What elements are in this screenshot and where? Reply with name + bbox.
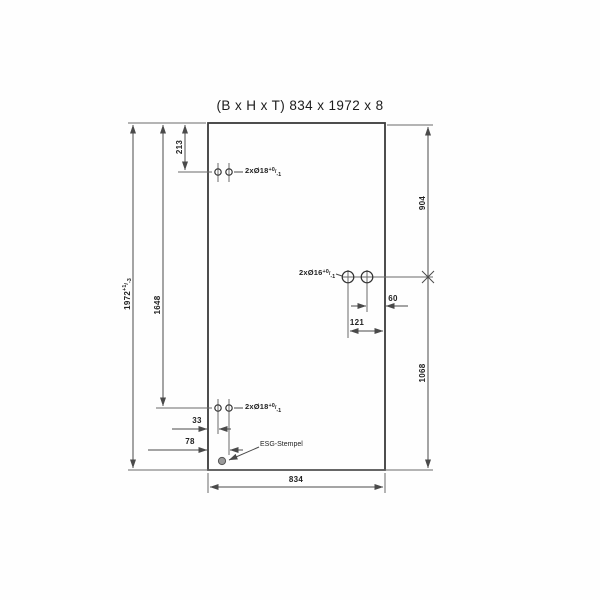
callout-bottom-hinge-holes: 2xØ18+0/-1 bbox=[245, 402, 281, 411]
dim-hinge-hole1-from-edge: 33 bbox=[186, 415, 208, 425]
callout-lock-holes: 2xØ16+0/-1 bbox=[299, 268, 335, 277]
callout-top-hinge-holes: 2xØ18+0/-1 bbox=[245, 166, 281, 175]
glass-panel-outline bbox=[208, 123, 385, 470]
dim-total-height-value: 1972 bbox=[123, 291, 132, 310]
extension-lines bbox=[128, 123, 433, 493]
drill-holes bbox=[215, 169, 373, 411]
callout-top-hinge-holes-label: 2xØ18 bbox=[245, 166, 269, 175]
dim-total-height-tolerance: +1/-3 bbox=[124, 278, 130, 291]
dim-lock-row-from-bottom: 1068 bbox=[416, 351, 428, 395]
technical-drawing-page: (B x H x T) 834 x 1972 x 8 1972+1/-3 164… bbox=[0, 0, 600, 600]
dim-lock-hole-to-edge: 60 bbox=[383, 293, 403, 303]
dim-top-holes-from-top: 213 bbox=[173, 127, 185, 167]
dim-bottom-holes-from-top: 1648 bbox=[151, 283, 163, 327]
dimension-lines bbox=[133, 125, 434, 487]
esg-stamp-label: ESG-Stempel bbox=[260, 441, 303, 448]
stamp-leader bbox=[229, 447, 259, 460]
esg-stamp-mark bbox=[218, 457, 225, 464]
callout-lock-holes-label: 2xØ16 bbox=[299, 268, 323, 277]
callout-bottom-hinge-holes-label: 2xØ18 bbox=[245, 402, 269, 411]
dim-lock-row-from-top: 904 bbox=[416, 181, 428, 225]
drawing-linework bbox=[0, 0, 600, 600]
dim-lock-hole-far-to-edge: 121 bbox=[344, 317, 370, 327]
dim-width: 834 bbox=[275, 474, 317, 484]
leader-lines bbox=[229, 172, 342, 460]
dim-hinge-hole2-from-edge: 78 bbox=[179, 436, 201, 446]
dim-total-height: 1972+1/-3 bbox=[121, 270, 133, 318]
drawing-title: (B x H x T) 834 x 1972 x 8 bbox=[0, 98, 600, 113]
